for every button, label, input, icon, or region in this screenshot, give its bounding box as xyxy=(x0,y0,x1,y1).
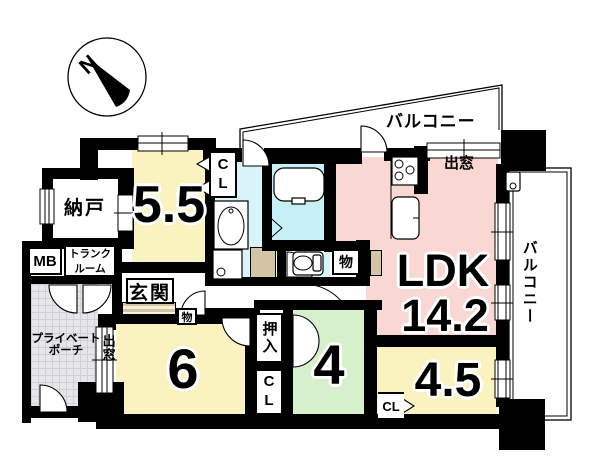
floor-plan: N MB トランク ルーム 玄関 CL 押入 CL 物 物 CL バルコニー バ… xyxy=(0,0,600,467)
tile-ldk-duct xyxy=(370,250,382,276)
storage-hall-box: 物 xyxy=(177,308,197,325)
balcony-top-label: バルコニー xyxy=(386,113,476,131)
porch-label: プライベート ポーチ xyxy=(28,333,104,357)
mb-label: MB xyxy=(33,253,56,270)
balcony-door-ldk xyxy=(361,126,387,152)
porch-label-2: ポーチ xyxy=(49,345,84,357)
balcony-right-label: バルコニー xyxy=(521,240,537,325)
balcony-right-outline xyxy=(509,168,571,420)
cl-6-label: CL xyxy=(261,373,278,411)
ldk-door-arc xyxy=(297,284,347,309)
room-4-size: 4 xyxy=(298,332,360,397)
storage-ldk-box: 物 xyxy=(332,249,360,275)
mono-ldk-label: 物 xyxy=(339,252,353,272)
toilet-floor xyxy=(286,249,330,278)
room-5-5-size: 5.5 xyxy=(126,175,212,235)
meter-box: MB xyxy=(28,247,62,275)
compass-north-label: N xyxy=(74,50,103,79)
water-heater-icon xyxy=(506,172,520,191)
cl-5-5-label: CL xyxy=(215,156,232,194)
closet-6-box: CL xyxy=(255,369,283,415)
mono-hall-label: 物 xyxy=(182,309,193,325)
genkan-label: 玄関 xyxy=(129,278,171,305)
oshiire-box: 押入 xyxy=(255,313,283,363)
bay-window-top-label: 出窓 xyxy=(444,156,474,172)
nando-label: 納戸 xyxy=(64,199,106,219)
room-4-5-size: 4.5 xyxy=(400,353,496,408)
room-6-size: 6 xyxy=(148,336,218,401)
compass-icon: N xyxy=(68,38,146,116)
trunk-label-2: ルーム xyxy=(74,261,105,276)
bathroom-floor xyxy=(272,160,324,242)
genkan-box: 玄関 xyxy=(126,278,174,304)
trunk-label-1: トランク xyxy=(69,246,111,261)
trunk-room-box: トランク ルーム xyxy=(64,245,116,277)
porch-label-1: プライベート xyxy=(32,333,101,345)
tile-washroom xyxy=(250,247,276,278)
closet-5-5-box: CL xyxy=(209,151,237,198)
cl-4-5-label: CL xyxy=(382,399,399,414)
ldk-size: 14.2 xyxy=(390,290,500,342)
oshiire-label: 押入 xyxy=(259,321,280,355)
